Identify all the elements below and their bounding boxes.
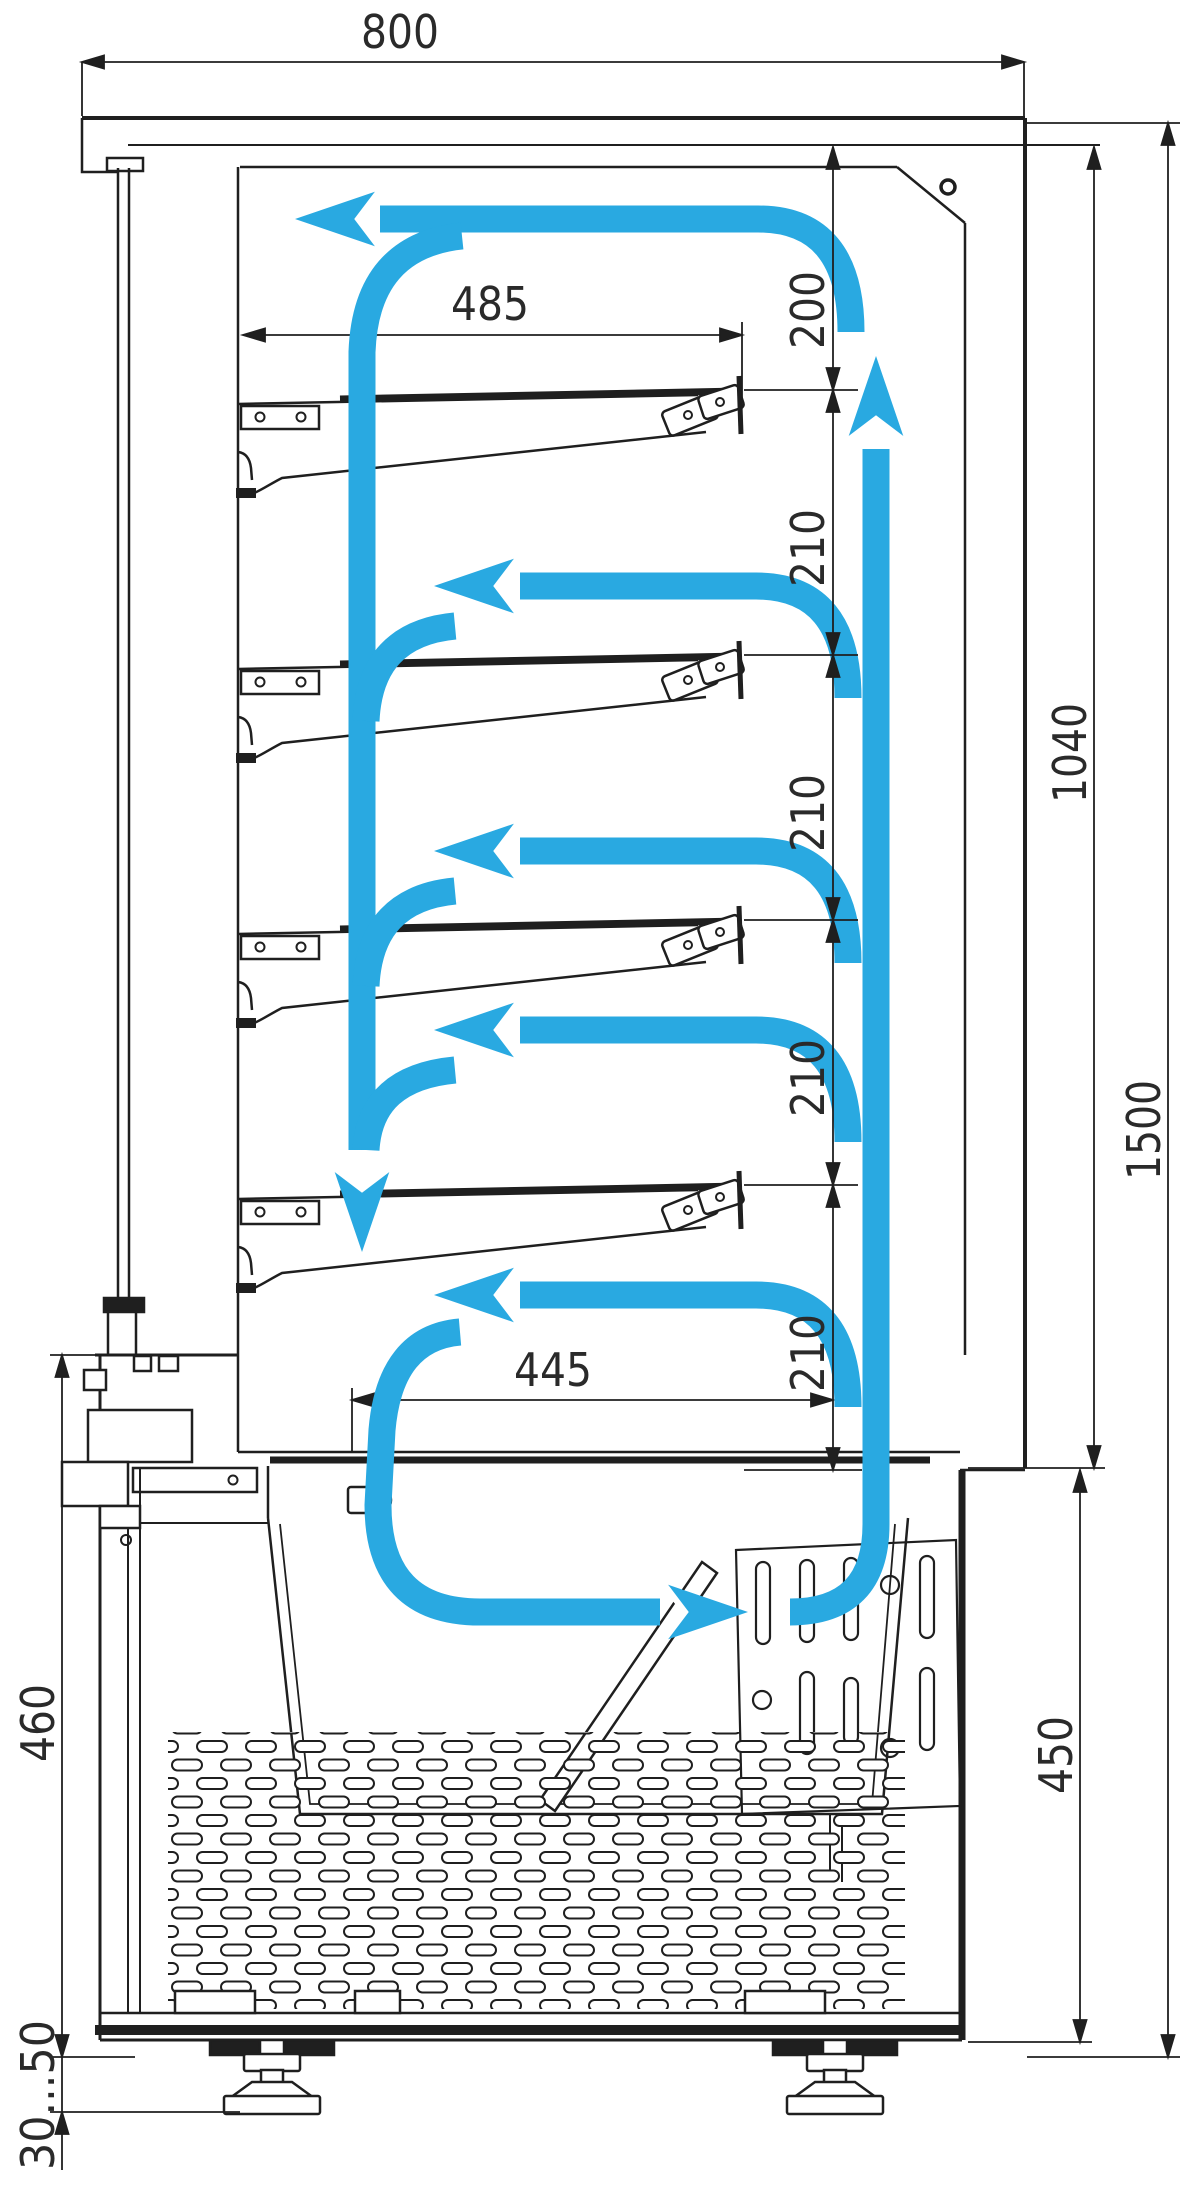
condenser-grille bbox=[168, 1732, 905, 2009]
dim-label-485: 485 bbox=[451, 277, 529, 331]
airflow-arrowhead-gap1 bbox=[434, 557, 519, 615]
airflow-gap3-branch bbox=[366, 1070, 455, 1150]
dimension-base-450: 450 bbox=[968, 1470, 1092, 2042]
shelf-1 bbox=[236, 376, 745, 498]
airflow-arrowhead-ceiling bbox=[295, 190, 380, 248]
airflow-gap2-branch bbox=[366, 891, 455, 986]
dimension-chain-shelf-spacing: 200 210 210 210 210 bbox=[744, 147, 862, 1470]
base-step-block-1 bbox=[134, 1356, 151, 1371]
airflow-arrowhead-gap3 bbox=[434, 1001, 519, 1059]
dim-label-800: 800 bbox=[361, 5, 439, 59]
airflow bbox=[295, 190, 905, 1641]
dimension-feet-30-50: 30...50 bbox=[11, 2020, 240, 2170]
foot-mount-2 bbox=[355, 1991, 400, 2013]
door-hinge-hardware bbox=[62, 1370, 192, 1545]
base-step-block-2 bbox=[159, 1356, 178, 1371]
dim-label-30-50: 30...50 bbox=[11, 2020, 65, 2170]
shelf-2 bbox=[236, 641, 745, 763]
door-bottom-cap bbox=[104, 1298, 144, 1312]
display-case-side-section: 800 485 445 bbox=[0, 0, 1189, 2186]
dim-label-460: 460 bbox=[11, 1684, 65, 1762]
dimension-shelf-485: 485 bbox=[243, 277, 742, 400]
airflow-arrowhead-down bbox=[333, 1167, 391, 1252]
airflow-arrowhead-gap4 bbox=[434, 1266, 519, 1324]
cabinet-structure bbox=[62, 118, 1100, 2114]
dim-label-445: 445 bbox=[514, 1343, 592, 1397]
inner-corner-chamfer bbox=[897, 167, 965, 223]
airflow-notches bbox=[333, 190, 905, 1641]
foot-mount-1 bbox=[175, 1991, 255, 2013]
corner-screw-hole bbox=[941, 180, 955, 194]
dim-label-210-3: 210 bbox=[781, 1039, 835, 1117]
dim-label-210-1: 210 bbox=[781, 509, 835, 587]
dim-label-210-2: 210 bbox=[781, 774, 835, 852]
dim-label-1040: 1040 bbox=[1043, 703, 1097, 803]
dim-label-1500: 1500 bbox=[1117, 1080, 1171, 1180]
airflow-arrowhead-up bbox=[847, 356, 905, 441]
shelf-4 bbox=[236, 1171, 745, 1293]
dimension-depth-800: 800 bbox=[82, 5, 1024, 116]
foot-mount-3 bbox=[745, 1991, 825, 2013]
dim-label-200: 200 bbox=[781, 271, 835, 349]
door-top-cap bbox=[107, 158, 143, 171]
airflow-gap1-branch bbox=[366, 626, 455, 721]
drawing-canvas: 800 485 445 bbox=[0, 0, 1189, 2186]
dimension-display-1040: 1040 bbox=[968, 147, 1105, 1468]
airflow-arrowhead-gap2 bbox=[434, 822, 519, 880]
dim-label-210-4: 210 bbox=[781, 1314, 835, 1392]
shelf-3 bbox=[236, 906, 745, 1028]
dim-label-450: 450 bbox=[1029, 1716, 1083, 1794]
